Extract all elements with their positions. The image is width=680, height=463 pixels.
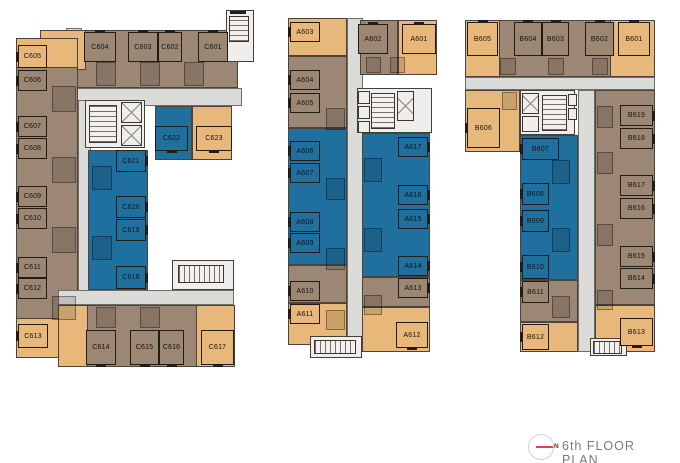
unit-a605: A605 (290, 93, 320, 113)
bathroom-pod (364, 158, 382, 182)
balcony-mark (427, 283, 430, 293)
stairs-icon (314, 340, 356, 354)
balcony-mark (427, 142, 430, 152)
unit-b609: B609 (522, 210, 549, 232)
unit-a610: A610 (290, 281, 320, 301)
unit-b610: B610 (522, 255, 549, 279)
balcony-mark (145, 225, 148, 235)
plan-title: 6th FLOOR PLAN (562, 439, 674, 463)
balcony-mark (165, 30, 175, 33)
stairs-icon (593, 341, 622, 354)
unit-a617: A617 (398, 137, 428, 157)
unit-c612: C612 (18, 278, 47, 299)
shaft-room (522, 116, 539, 132)
balcony-mark (95, 30, 105, 33)
unit-a601: A601 (402, 24, 436, 54)
unit-b603: B603 (542, 22, 569, 56)
balcony-mark (520, 332, 523, 342)
balcony-mark (16, 52, 19, 62)
balcony-mark (523, 20, 533, 23)
unit-a613: A613 (398, 278, 428, 298)
unit-b612: B612 (522, 324, 549, 350)
bathroom-pod (552, 160, 570, 184)
balcony-mark (520, 262, 523, 272)
balcony-mark (427, 261, 430, 271)
bathroom-pod (52, 227, 76, 253)
balcony-mark (138, 30, 148, 33)
bathroom-pod (326, 178, 345, 200)
unit-c604: C604 (84, 32, 116, 62)
bathroom-pod (502, 92, 517, 110)
bathroom-pod (552, 228, 570, 252)
balcony-mark (595, 20, 605, 23)
balcony-mark (652, 204, 655, 214)
balcony-mark (288, 146, 291, 156)
balcony-mark (520, 287, 523, 297)
unit-a609: A609 (290, 233, 320, 253)
bathroom-pod (96, 307, 116, 328)
unit-c609: C609 (18, 186, 47, 207)
balcony-mark (478, 20, 488, 23)
balcony-mark (652, 252, 655, 262)
unit-a611: A611 (290, 304, 320, 324)
balcony-mark (465, 123, 468, 133)
bathroom-pod (592, 58, 608, 75)
balcony-mark (16, 122, 19, 132)
unit-a608: A608 (290, 212, 320, 232)
unit-a614: A614 (398, 256, 428, 276)
balcony-mark (96, 364, 106, 367)
balcony-mark (213, 364, 223, 367)
unit-a616: A616 (398, 185, 428, 205)
balcony-mark (288, 98, 291, 108)
elevator-icon (522, 93, 539, 114)
unit-b605: B605 (467, 22, 498, 56)
bathroom-pod (52, 157, 76, 183)
balcony-mark (16, 192, 19, 202)
balcony-mark (414, 22, 424, 25)
unit-c614: C614 (86, 330, 116, 365)
balcony-mark (209, 150, 219, 153)
compass-north-label: N (554, 443, 559, 450)
elevator-icon (121, 125, 142, 146)
unit-b617: B617 (620, 175, 653, 196)
balcony-mark (520, 189, 523, 199)
unit-b618: B618 (620, 128, 653, 149)
unit-a607: A607 (290, 163, 320, 183)
elevator-icon (121, 102, 142, 123)
unit-a603: A603 (290, 22, 320, 42)
balcony-mark (288, 217, 291, 227)
bathroom-pod (52, 296, 76, 320)
bathroom-pod (548, 58, 564, 75)
balcony-mark (407, 347, 417, 350)
unit-b601: B601 (618, 22, 650, 56)
stairs-icon (542, 95, 567, 131)
balcony-mark (145, 202, 148, 212)
unit-c620: C620 (116, 196, 146, 218)
unit-a615: A615 (398, 209, 428, 229)
balcony-mark (520, 144, 523, 154)
bathroom-pod (326, 108, 345, 130)
tower-cap (230, 11, 246, 14)
balcony-mark (632, 345, 642, 348)
unit-c605: C605 (18, 45, 47, 68)
balcony-mark (145, 273, 148, 283)
balcony-mark (16, 284, 19, 294)
b-corridor-spine (578, 90, 595, 352)
unit-b604: B604 (514, 22, 542, 56)
floor-plan-canvas: N 6th FLOOR PLAN C601C602C603C604C605C60… (0, 0, 680, 463)
bathroom-pod (326, 248, 345, 270)
compass-needle (536, 446, 553, 448)
unit-c601: C601 (198, 32, 228, 62)
unit-b616: B616 (620, 198, 653, 219)
bathroom-pod (597, 290, 613, 310)
balcony-mark (652, 134, 655, 144)
bathroom-pod (96, 62, 116, 86)
balcony-mark (288, 75, 291, 85)
stairs-icon (89, 105, 117, 143)
balcony-mark (167, 364, 177, 367)
balcony-mark (208, 30, 218, 33)
unit-c610: C610 (18, 208, 47, 229)
balcony-mark (16, 214, 19, 224)
unit-b602: B602 (585, 22, 614, 56)
bathroom-pod (364, 295, 382, 315)
balcony-mark (427, 190, 430, 200)
balcony-mark (145, 156, 148, 166)
balcony-mark (629, 20, 639, 23)
balcony-mark (652, 274, 655, 284)
balcony-mark (288, 309, 291, 319)
c-bottom-corridor (58, 290, 234, 305)
bathroom-pod (390, 57, 405, 73)
bathroom-pod (364, 228, 382, 252)
bathroom-pod (92, 236, 112, 260)
unit-b619: B619 (620, 105, 653, 126)
shaft-room (358, 106, 370, 119)
unit-a606: A606 (290, 141, 320, 161)
bathroom-pod (52, 86, 76, 112)
shaft-room (568, 94, 577, 106)
balcony-mark (520, 216, 523, 226)
bathroom-pod (92, 166, 112, 190)
unit-c611: C611 (18, 257, 47, 278)
unit-b606: B606 (467, 108, 500, 148)
unit-c615: C615 (130, 330, 159, 365)
unit-c607: C607 (18, 116, 47, 137)
shaft-room (568, 108, 577, 120)
shaft-room (358, 91, 370, 104)
stairs-icon (229, 16, 249, 42)
unit-c621: C621 (116, 150, 146, 172)
balcony-mark (551, 20, 561, 23)
bathroom-pod (326, 310, 345, 330)
unit-c616: C616 (159, 330, 184, 365)
unit-b613: B613 (620, 318, 653, 346)
bathroom-pod (184, 62, 204, 86)
bathroom-pod (597, 224, 613, 246)
unit-c603: C603 (128, 32, 158, 62)
balcony-mark (288, 238, 291, 248)
balcony-mark (288, 168, 291, 178)
balcony-mark (427, 214, 430, 224)
bathroom-pod (140, 307, 160, 328)
balcony-mark (368, 22, 378, 25)
b-top-corridor (465, 77, 655, 90)
bathroom-pod (552, 296, 570, 318)
bathroom-pod (597, 152, 613, 174)
balcony-mark (288, 286, 291, 296)
bathroom-pod (597, 106, 613, 128)
unit-c606: C606 (18, 70, 47, 91)
unit-a602: A602 (358, 24, 388, 54)
unit-b611: B611 (522, 281, 549, 303)
unit-c622: C622 (155, 126, 188, 151)
unit-a612: A612 (396, 322, 428, 348)
unit-b615: B615 (620, 246, 653, 267)
balcony-mark (140, 364, 150, 367)
shaft-room (358, 121, 370, 133)
bathroom-pod (366, 57, 381, 73)
balcony-mark (167, 150, 177, 153)
unit-c613: C613 (18, 324, 48, 348)
balcony-mark (288, 27, 291, 37)
elevator-icon (397, 91, 414, 121)
balcony-mark (652, 111, 655, 121)
unit-a604: A604 (290, 70, 320, 90)
unit-b614: B614 (620, 268, 653, 289)
balcony-mark (16, 144, 19, 154)
unit-c608: C608 (18, 138, 47, 159)
balcony-mark (16, 76, 19, 86)
stairs-icon (371, 93, 395, 129)
stairs-icon (178, 265, 224, 283)
unit-c618: C618 (116, 266, 146, 289)
bathroom-pod (500, 58, 516, 75)
unit-c623: C623 (196, 126, 232, 151)
balcony-mark (16, 263, 19, 273)
balcony-mark (16, 331, 19, 341)
unit-c602: C602 (158, 32, 182, 62)
unit-b607: B607 (522, 138, 559, 160)
unit-c619: C619 (116, 219, 146, 241)
title-block: N 6th FLOOR PLAN (514, 430, 674, 462)
unit-b608: B608 (522, 183, 549, 205)
unit-c617: C617 (201, 330, 234, 365)
bathroom-pod (140, 62, 160, 86)
balcony-mark (652, 181, 655, 191)
